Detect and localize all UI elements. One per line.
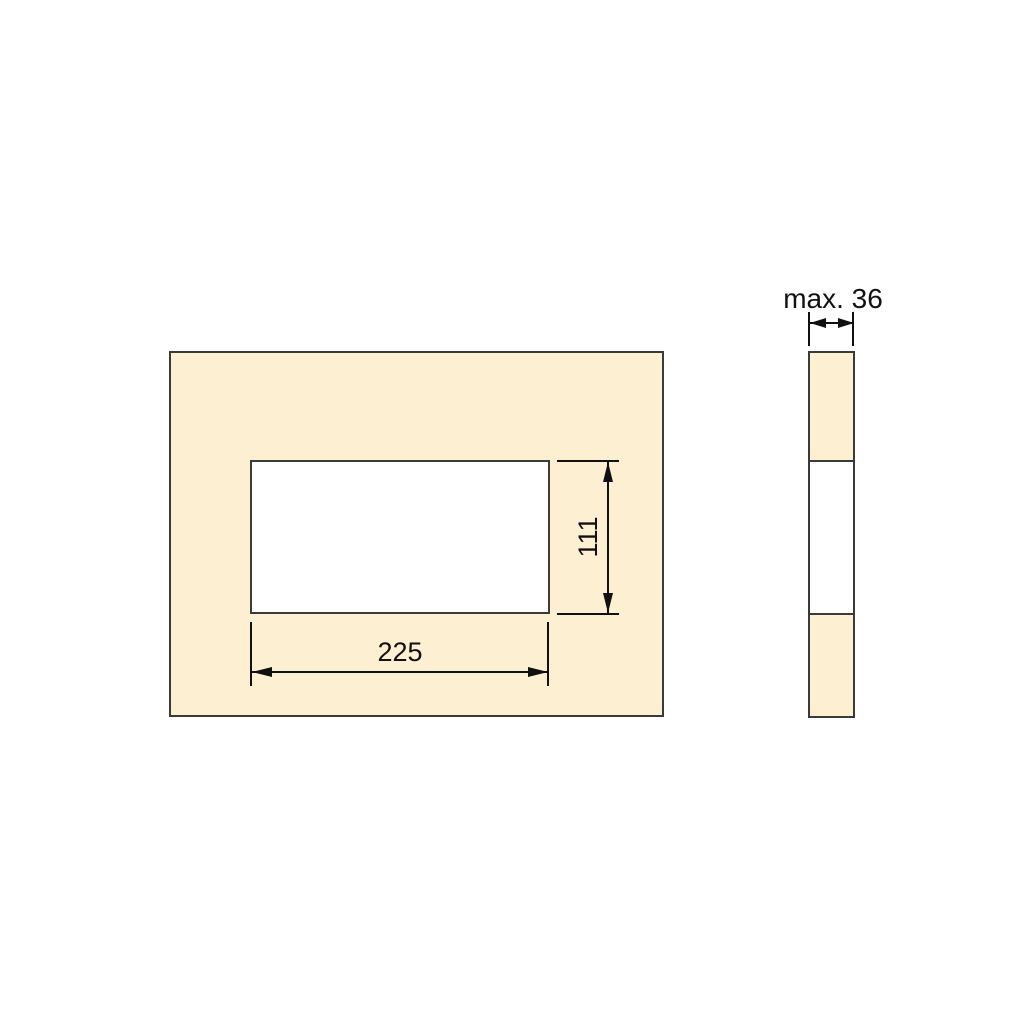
width-dim-arrow-left-icon	[252, 667, 272, 677]
thickness-dimension-label: max. 36	[773, 285, 893, 313]
front-view-cutout	[250, 460, 550, 614]
height-dim-extension-line-bottom	[557, 613, 619, 615]
thickness-dim-arrow-right-icon	[838, 318, 854, 328]
width-dimension-label: 225	[340, 639, 460, 666]
height-dim-arrow-down-icon	[603, 593, 613, 613]
side-view-top-section	[810, 353, 853, 462]
thickness-dim-arrow-left-icon	[810, 318, 826, 328]
side-view-bottom-section	[810, 613, 853, 716]
technical-drawing-canvas: 225 111 max. 36	[0, 0, 1024, 1024]
side-view-panel	[808, 351, 855, 718]
width-dim-line	[252, 671, 547, 673]
width-dim-arrow-right-icon	[528, 667, 548, 677]
height-dim-arrow-up-icon	[603, 462, 613, 482]
height-dimension-label: 111	[548, 497, 628, 577]
